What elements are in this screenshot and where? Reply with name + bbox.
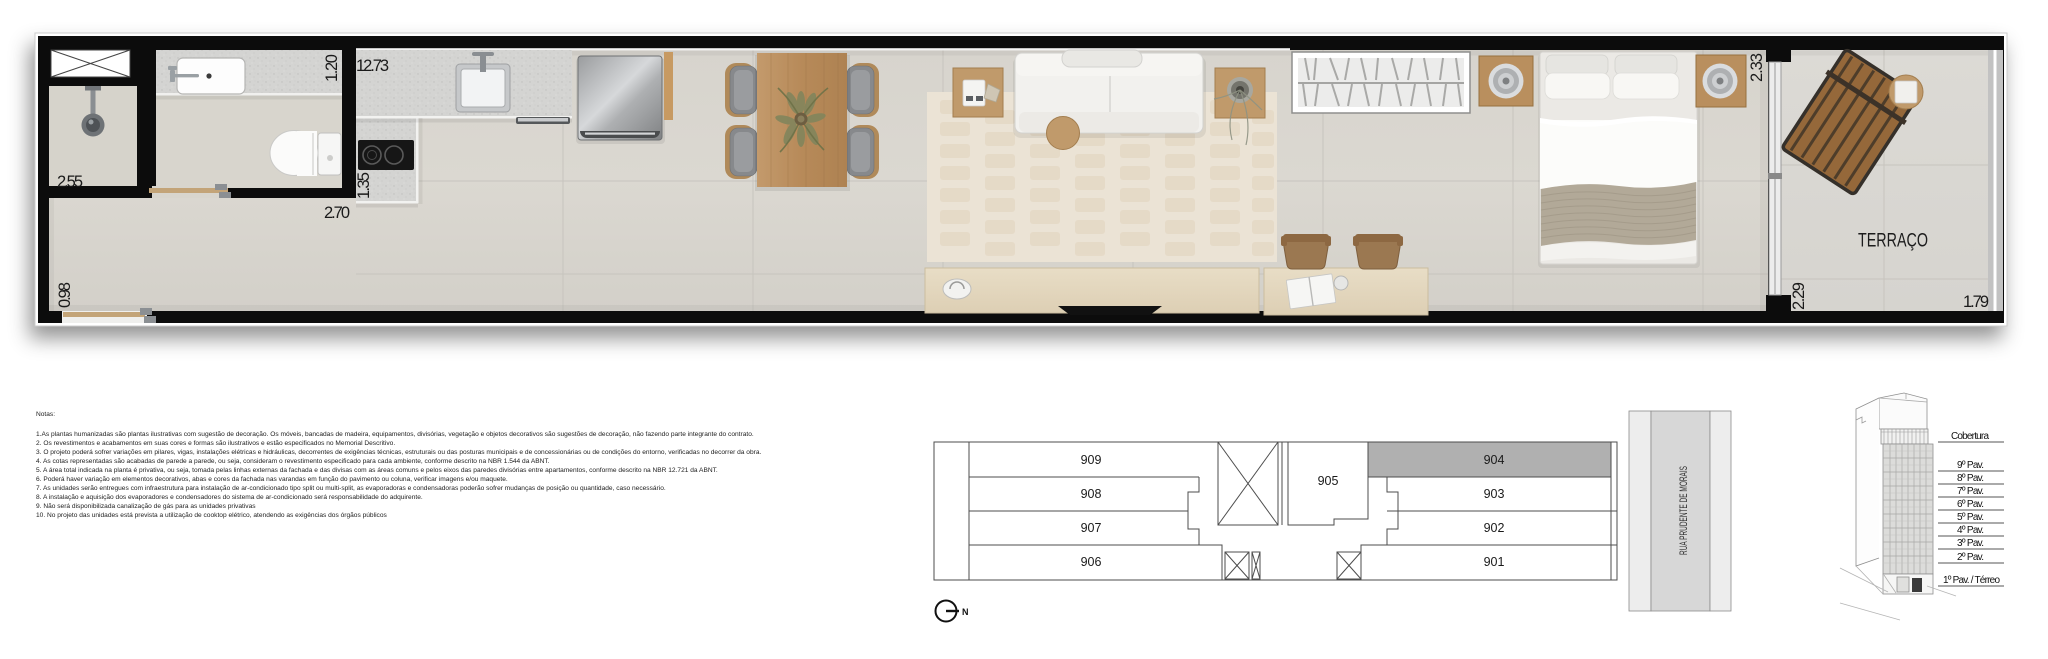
svg-text:1º Pav. / Térreo: 1º Pav. / Térreo <box>1943 575 2000 586</box>
svg-text:9. Não será disponibilizada ca: 9. Não será disponibilizada canalização … <box>36 503 256 510</box>
svg-text:1.As plantas humanizadas são p: 1.As plantas humanizadas são plantas ilu… <box>36 431 754 438</box>
svg-text:8. A instalação e aquisição do: 8. A instalação e aquisição dos evaporad… <box>36 494 423 501</box>
svg-text:10. No projeto das unidades es: 10. No projeto das unidades está previst… <box>36 512 387 519</box>
svg-text:7º Pav.: 7º Pav. <box>1957 486 1984 497</box>
svg-text:RUA PRUDENTE DE MORAIS: RUA PRUDENTE DE MORAIS <box>1678 466 1690 555</box>
svg-text:906: 906 <box>1081 555 1102 569</box>
svg-text:12.73: 12.73 <box>356 57 389 75</box>
svg-text:2º Pav.: 2º Pav. <box>1957 552 1984 563</box>
svg-text:TERRAÇO: TERRAÇO <box>1858 231 1928 252</box>
svg-text:1.20: 1.20 <box>323 54 341 82</box>
svg-text:907: 907 <box>1081 521 1102 535</box>
svg-text:901: 901 <box>1484 555 1505 569</box>
svg-text:6. Poderá haver variação em el: 6. Poderá haver variação em elementos de… <box>36 476 508 483</box>
svg-text:7. As unidades serão entregues: 7. As unidades serão entregues com infra… <box>36 485 666 492</box>
svg-text:903: 903 <box>1484 487 1505 501</box>
svg-text:1.35: 1.35 <box>355 172 373 199</box>
svg-text:2.70: 2.70 <box>324 204 350 222</box>
svg-text:3. O projeto poderá sofrer var: 3. O projeto poderá sofrer variações em … <box>36 449 762 456</box>
svg-text:9º Pav.: 9º Pav. <box>1957 460 1984 471</box>
svg-text:Notas:: Notas: <box>36 411 55 418</box>
svg-text:0.98: 0.98 <box>56 282 74 308</box>
svg-text:3º Pav.: 3º Pav. <box>1957 538 1984 549</box>
svg-text:905: 905 <box>1318 474 1339 488</box>
svg-text:Cobertura: Cobertura <box>1951 431 1989 442</box>
svg-text:908: 908 <box>1081 487 1102 501</box>
svg-text:5. A área total indicada na pl: 5. A área total indicada na planta é pri… <box>36 467 718 474</box>
svg-text:4º Pav.: 4º Pav. <box>1957 525 1984 536</box>
svg-text:5º Pav.: 5º Pav. <box>1957 512 1984 523</box>
svg-text:902: 902 <box>1484 521 1505 535</box>
svg-text:1.79: 1.79 <box>1963 293 1989 311</box>
svg-text:2. Os revestimentos e acabamen: 2. Os revestimentos e acabamentos em sua… <box>36 440 395 447</box>
svg-text:909: 909 <box>1081 453 1102 467</box>
svg-text:2.55: 2.55 <box>57 173 83 191</box>
svg-text:904: 904 <box>1484 453 1505 467</box>
svg-text:N: N <box>962 607 969 617</box>
svg-text:2.29: 2.29 <box>1790 282 1808 310</box>
svg-text:8º Pav.: 8º Pav. <box>1957 473 1984 484</box>
svg-text:2.33: 2.33 <box>1748 53 1766 82</box>
svg-text:4. As cotas representadas são: 4. As cotas representadas são acabadas d… <box>36 458 550 465</box>
svg-text:6º Pav.: 6º Pav. <box>1957 499 1984 510</box>
